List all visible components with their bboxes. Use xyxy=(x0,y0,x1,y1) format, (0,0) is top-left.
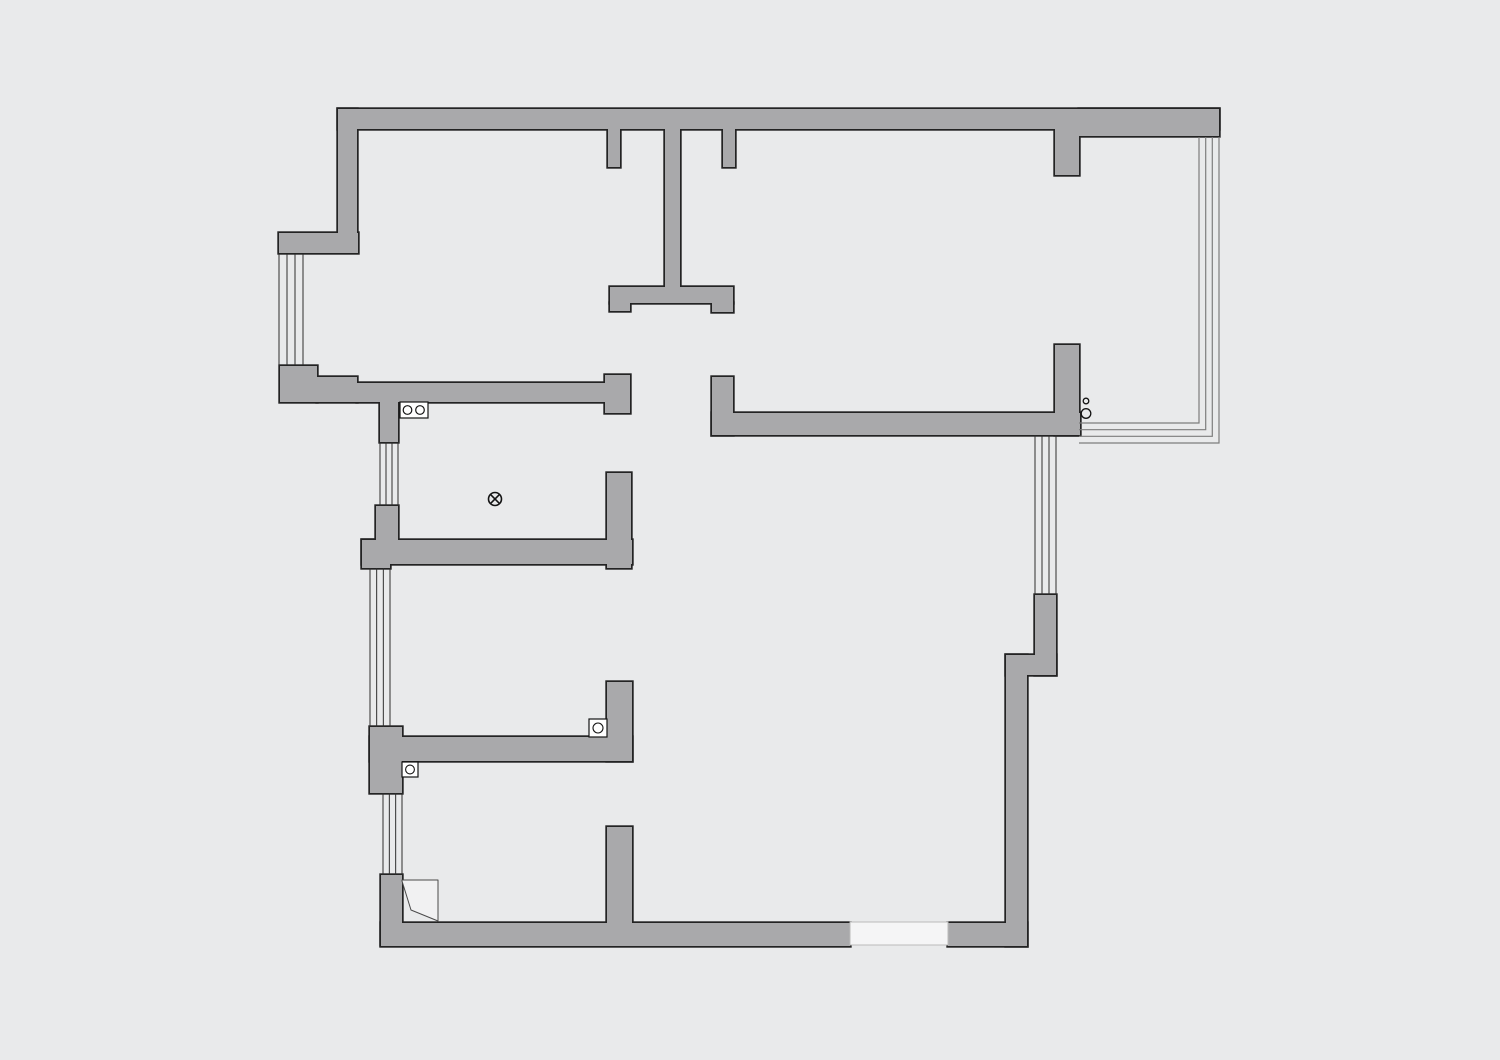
wall-segment-living-bar xyxy=(712,413,1080,435)
entry-opening xyxy=(850,922,948,945)
wall-segment-kitchen-west-stub xyxy=(380,402,398,442)
wall-segment-top-stub-c xyxy=(1055,129,1079,175)
wall-segment-bottom-stub xyxy=(607,827,632,923)
wall-segment-bottom-wall xyxy=(381,923,850,946)
wall-segment-left-jut-block xyxy=(279,233,358,253)
drain-outline xyxy=(402,762,418,777)
stove-symbol xyxy=(400,402,428,418)
drain-outline xyxy=(589,719,607,737)
wall-segment-top-wall-right xyxy=(1079,109,1219,136)
wall-segment-top-stub-a xyxy=(608,129,620,167)
wall-segment-kitchen-step xyxy=(317,377,357,402)
drain-symbol xyxy=(402,762,418,777)
wall-segment-hall-t-foot-right xyxy=(712,303,733,312)
wall-segment-kitchen-sw-block xyxy=(376,506,398,541)
wall-segment-hall-t-foot-left xyxy=(610,303,630,311)
wall-segment-mid-east-wall xyxy=(607,473,631,568)
wall-segment-lower-left-block xyxy=(370,727,402,793)
wall-segment-kitchen-ne-block xyxy=(605,375,630,413)
floor-plan-page xyxy=(0,0,1500,1060)
wall-segment-mid-bar-left-block xyxy=(362,540,390,568)
wall-segment-hall-wall-vertical xyxy=(665,129,680,288)
wall-segment-top-stub-b xyxy=(723,129,735,167)
wall-segment-right-window-block xyxy=(1035,595,1056,675)
wall-segment-kitchen-north-wall xyxy=(357,383,605,402)
wall-segment-right-wall xyxy=(1006,655,1027,946)
plan-background xyxy=(0,0,1500,1060)
wall-segment-mid-bar xyxy=(362,540,632,564)
floor-plan-canvas xyxy=(0,0,1500,1060)
drain-symbol xyxy=(589,719,607,737)
wall-segment-kitchen-left-block xyxy=(280,366,317,402)
wall-segment-hall-t-bar xyxy=(610,287,733,303)
wall-segment-lower-bar xyxy=(370,737,632,761)
wall-segment-upper-left-wall xyxy=(338,109,357,233)
wall-segment-lower-stub-up xyxy=(607,682,632,761)
wall-segment-balcony-wall xyxy=(1055,345,1079,435)
